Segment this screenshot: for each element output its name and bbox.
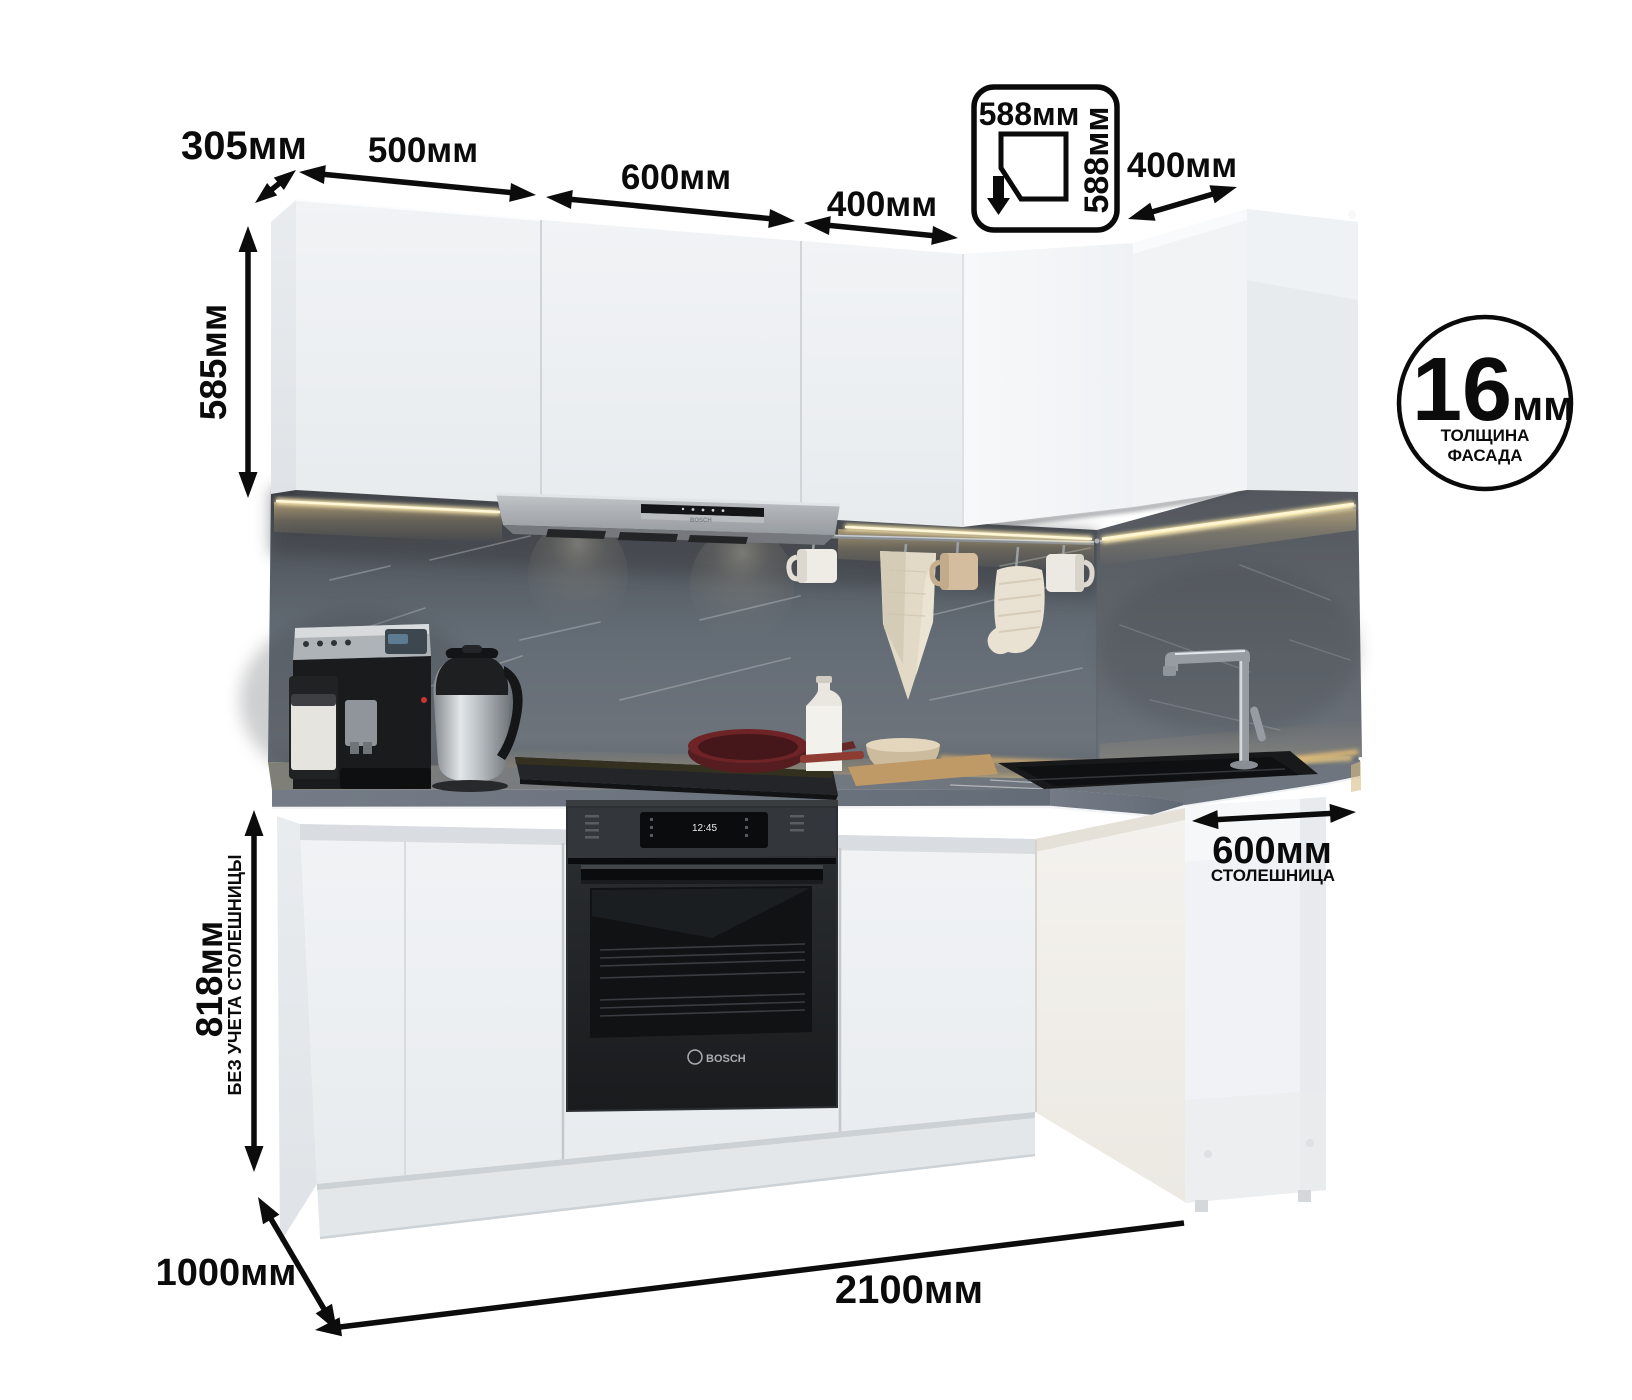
svg-text:818мм: 818мм: [189, 921, 230, 1037]
svg-text:1000мм: 1000мм: [156, 1252, 297, 1294]
svg-text:305мм: 305мм: [181, 124, 307, 168]
svg-text:ТОЛЩИНА: ТОЛЩИНА: [1441, 426, 1530, 445]
svg-text:12:45: 12:45: [692, 823, 717, 834]
svg-text:588мм: 588мм: [979, 96, 1080, 132]
svg-text:600мм: 600мм: [621, 158, 731, 197]
svg-text:588мм: 588мм: [1078, 106, 1116, 213]
svg-text:БЕЗ УЧЕТА СТОЛЕШНИЦЫ: БЕЗ УЧЕТА СТОЛЕШНИЦЫ: [225, 854, 245, 1095]
svg-text:400мм: 400мм: [827, 185, 937, 224]
svg-text:500мм: 500мм: [368, 131, 478, 170]
svg-text:BOSCH: BOSCH: [690, 518, 712, 524]
svg-text:СТОЛЕШНИЦА: СТОЛЕШНИЦА: [1211, 866, 1335, 885]
svg-text:585мм: 585мм: [193, 304, 234, 420]
svg-text:400мм: 400мм: [1127, 146, 1237, 185]
svg-text:2100мм: 2100мм: [835, 1268, 983, 1312]
svg-text:ФАСАДА: ФАСАДА: [1447, 446, 1522, 465]
svg-text:BOSCH: BOSCH: [706, 1053, 746, 1065]
